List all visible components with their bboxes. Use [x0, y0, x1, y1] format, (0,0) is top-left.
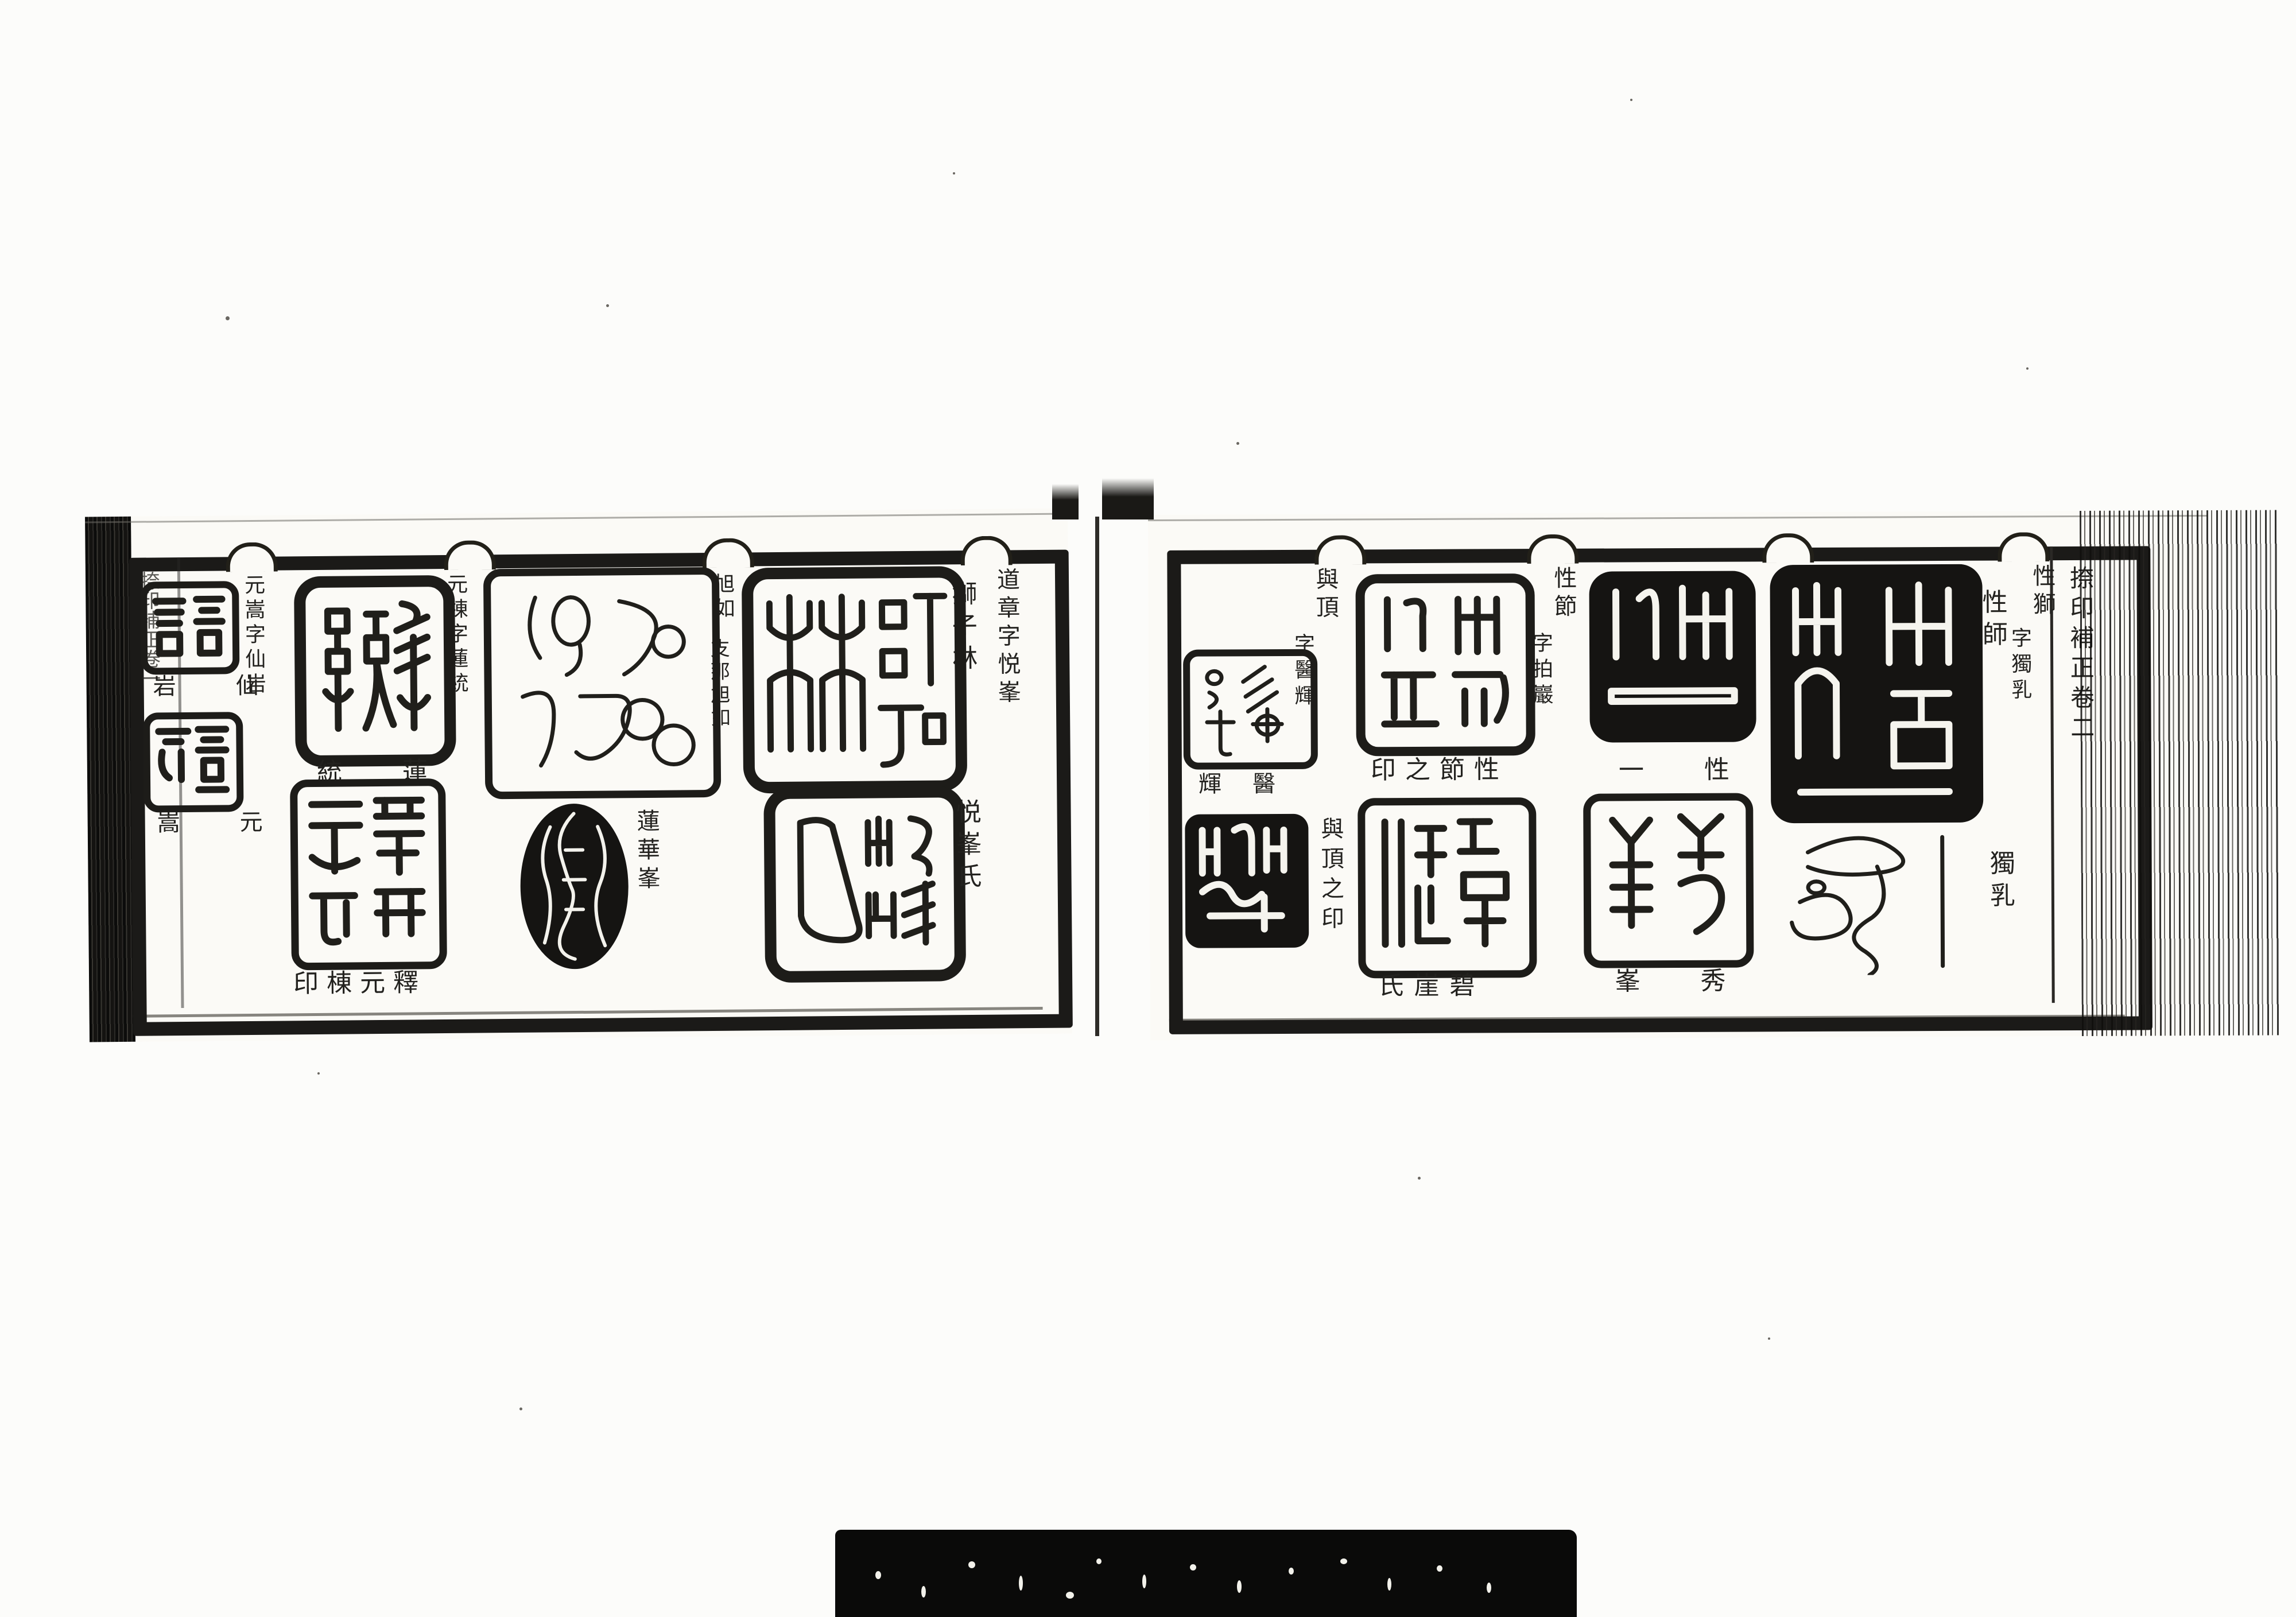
- entry-header-shoshi-name: 性獅: [2025, 564, 2058, 620]
- seal-script-glyphs: [150, 719, 236, 805]
- scan-speck: [606, 304, 609, 307]
- seal-script-glyphs: [1185, 814, 1309, 948]
- entry-header-shosetsu-name: 性節: [1546, 566, 1580, 622]
- scan-speck: [953, 172, 955, 175]
- seal-impression-rento: [294, 575, 456, 767]
- fleck: [1387, 1578, 1391, 1591]
- fleck: [1487, 1583, 1491, 1593]
- seal-script-glyphs: [1589, 571, 1756, 742]
- scan-speck: [519, 1407, 522, 1410]
- seal-album-scan: 捺印補正卷一 道章字悦峯 獅子林 悦峯氏 旭如 支那旭如: [0, 0, 2296, 1617]
- scan-speck: [226, 316, 230, 320]
- binding-tab: [1102, 478, 1154, 519]
- seal-impression-yocho: [1185, 814, 1309, 948]
- seal-impression-shoshi: [1770, 564, 1983, 824]
- seal-caption-sengan: 岩 仙: [153, 667, 273, 701]
- seal-caption-dokunyu: 獨乳: [1981, 850, 2018, 914]
- seal-script-glyphs: [1365, 805, 1529, 971]
- seal-caption-renge: 蓮華峯: [630, 809, 664, 895]
- fleck: [1289, 1568, 1294, 1575]
- fleck: [968, 1561, 975, 1568]
- fleck: [1237, 1580, 1242, 1593]
- fleck: [1096, 1558, 1102, 1564]
- center-gutter-line: [1095, 517, 1099, 1036]
- seal-script-glyphs: [1591, 800, 1746, 960]
- seal-impression-shuho: [1583, 793, 1754, 968]
- seal-script-glyphs: [147, 588, 232, 668]
- seal-impression-shoitsu: [1589, 571, 1756, 742]
- seal-impression-renge: [519, 803, 629, 970]
- right-page-stack-edge: [2080, 510, 2280, 1036]
- seal-script-glyphs: [775, 797, 955, 971]
- seal-script-glyphs: [753, 577, 956, 782]
- fleck: [1190, 1564, 1196, 1571]
- right-page: 捺印補正卷二 性獅 字獨乳 性師 獨乳 性節 字拍巖: [1148, 510, 2209, 1040]
- seal-impression-shaku: [290, 778, 447, 970]
- binding-tab: [1052, 484, 1079, 519]
- seal-caption-yocho: 與頂之印: [1313, 817, 1347, 936]
- seal-impression-iki: [1183, 649, 1318, 770]
- seal-script-glyphs: [1770, 564, 1983, 824]
- seal-impression-shosetsu: [1355, 573, 1535, 756]
- fleck: [1142, 1575, 1146, 1588]
- seal-caption-shuho: 峯 秀: [1615, 960, 1740, 998]
- seal-impression-sengan: [140, 581, 239, 674]
- seal-impression-gensho: [143, 712, 244, 813]
- entry-header-yocho-name: 與頂: [1308, 567, 1341, 623]
- seal-script-glyphs: [1771, 828, 1975, 976]
- seal-impression-hekigai: [1358, 797, 1537, 978]
- seal-caption-eppo: 悦峯氏: [947, 798, 984, 895]
- seal-impression-shishirin: [742, 566, 967, 793]
- scan-speck: [1236, 442, 1239, 445]
- seal-impression-shina: [483, 567, 721, 800]
- scan-speck: [2026, 367, 2029, 370]
- fleck: [1019, 1576, 1023, 1591]
- fleck: [1340, 1558, 1347, 1564]
- fleck: [1437, 1565, 1442, 1572]
- seal-script-glyphs: [519, 803, 629, 970]
- fleck: [1066, 1592, 1074, 1599]
- scan-speck: [1768, 1337, 1770, 1340]
- scan-speck: [1418, 1177, 1421, 1180]
- fleck: [875, 1571, 881, 1579]
- seal-impression-dokunyu: [1771, 828, 1975, 976]
- seal-script-glyphs: [297, 786, 440, 963]
- seal-caption-shaku: 印棟元釋: [293, 961, 427, 999]
- entry-header-dosho: 道章字悦峯: [990, 567, 1024, 708]
- left-page: 捺印補正卷一 道章字悦峯 獅子林 悦峯氏 旭如 支那旭如: [85, 509, 1072, 1042]
- seal-caption-shosetsu: 印之節性: [1371, 749, 1508, 786]
- seal-caption-iki: 輝 醫: [1199, 765, 1288, 799]
- seal-script-glyphs: [1190, 656, 1311, 763]
- scan-speck: [1630, 99, 1632, 101]
- seal-impression-eppo: [763, 786, 966, 983]
- fleck: [921, 1586, 926, 1597]
- seal-script-glyphs: [491, 575, 713, 792]
- seal-caption-gensho: 嵩 元: [157, 804, 277, 838]
- seal-caption-hekigai: 氏崖碧: [1378, 964, 1485, 1002]
- scan-speck: [317, 1072, 320, 1075]
- seal-script-glyphs: [1365, 583, 1526, 747]
- left-page-stack-edge: [85, 517, 135, 1042]
- black-backing-bar: [835, 1530, 1577, 1617]
- seal-caption-shoitsu: 一 性: [1619, 749, 1744, 786]
- seal-script-glyphs: [305, 587, 445, 755]
